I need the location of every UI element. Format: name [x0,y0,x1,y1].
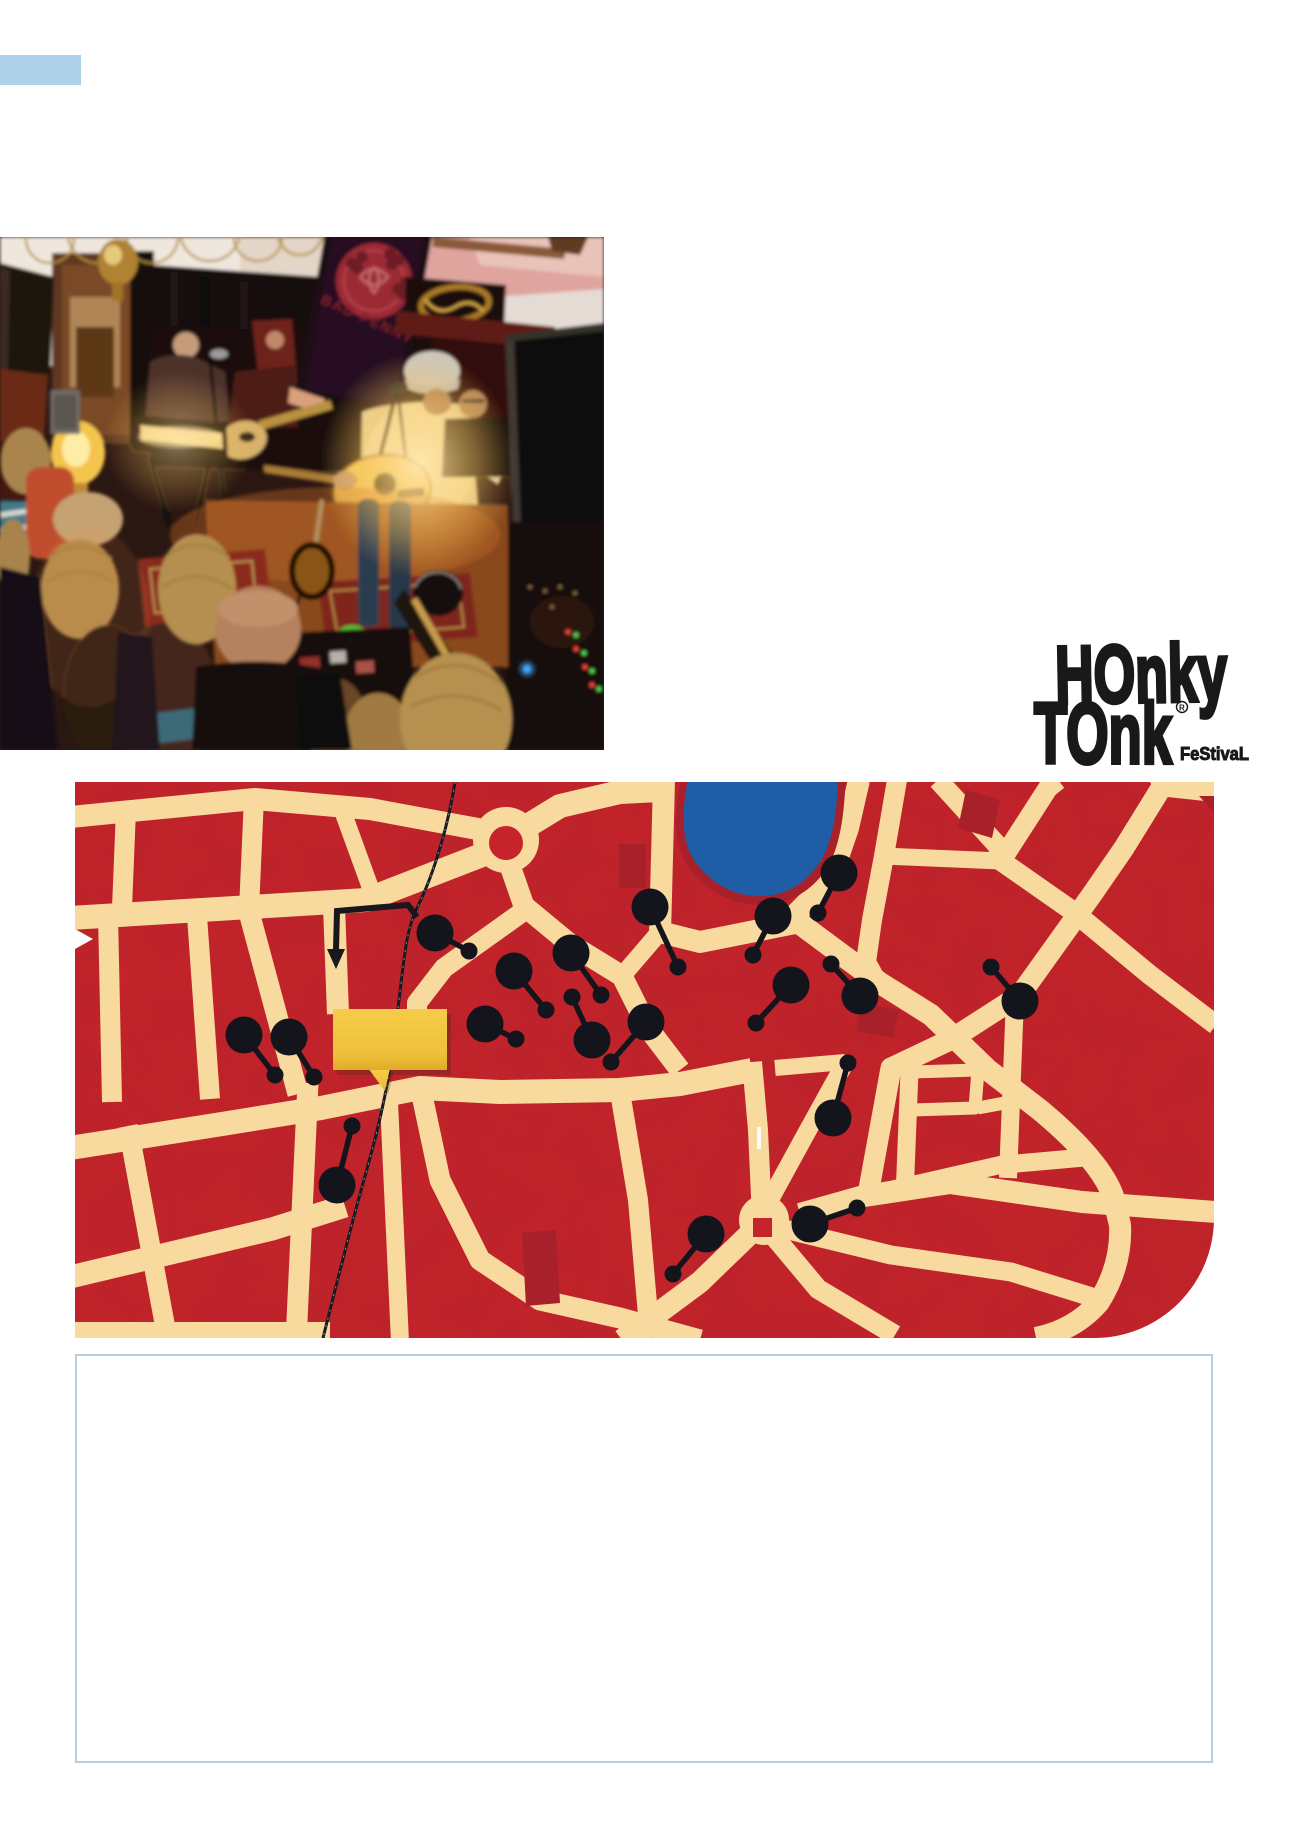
svg-text:FeStivaL: FeStivaL [1180,743,1249,764]
svg-text:TOnk: TOnk [1034,686,1172,780]
svg-text:R: R [1179,704,1185,713]
